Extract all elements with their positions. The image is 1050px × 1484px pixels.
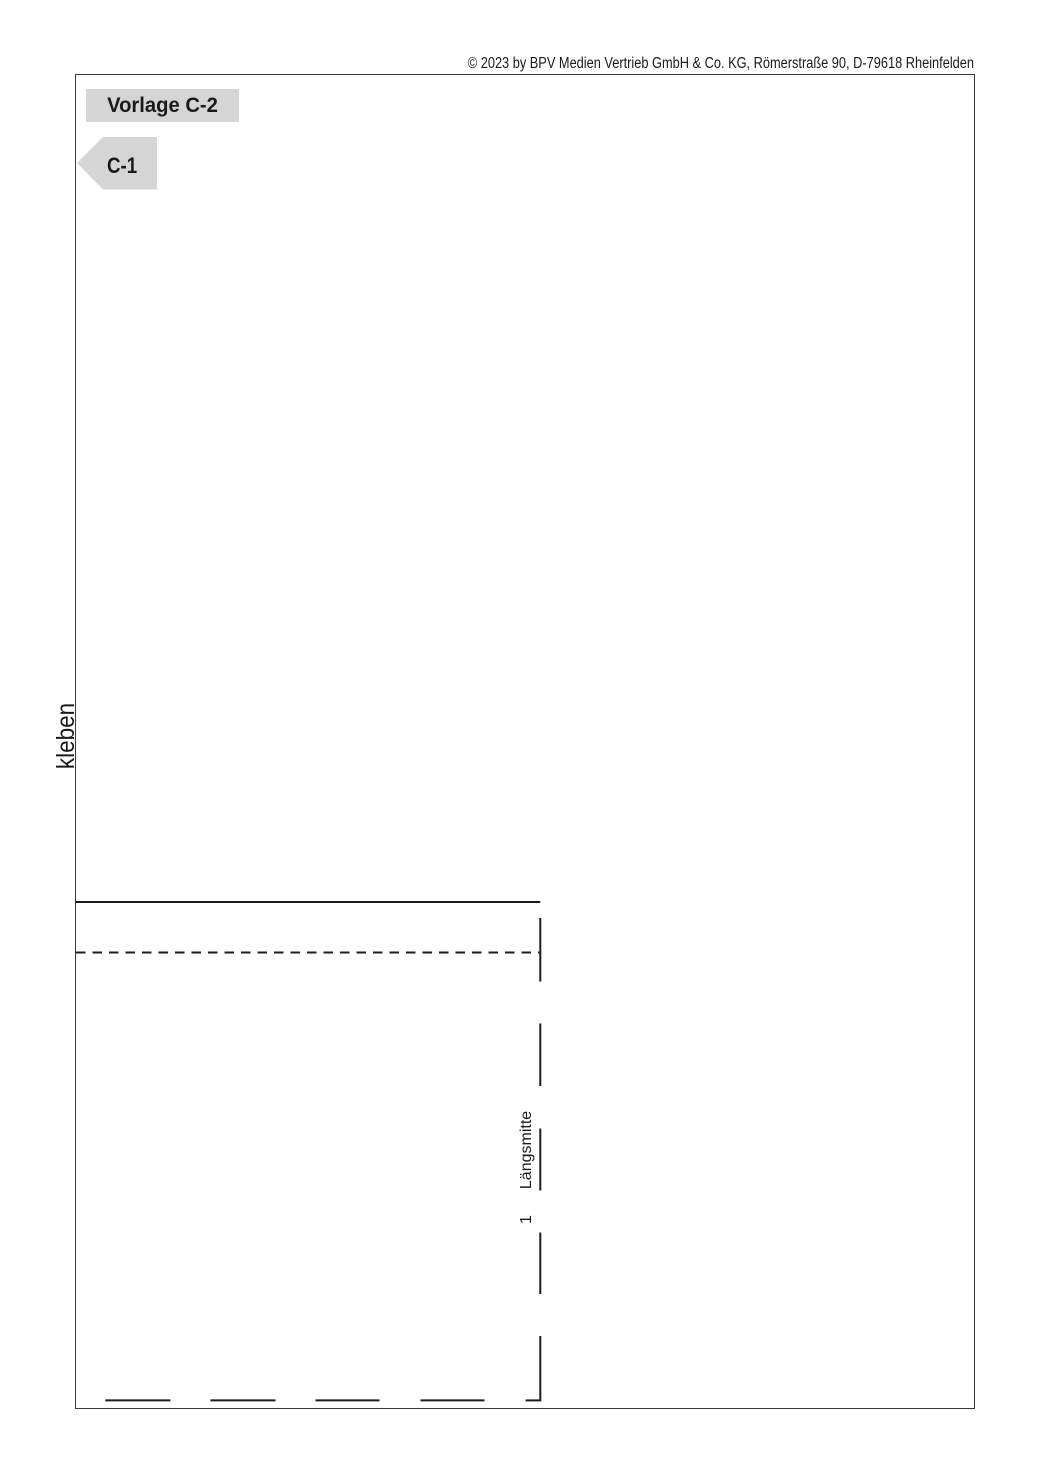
svg-text:C-1: C-1 bbox=[107, 154, 137, 178]
